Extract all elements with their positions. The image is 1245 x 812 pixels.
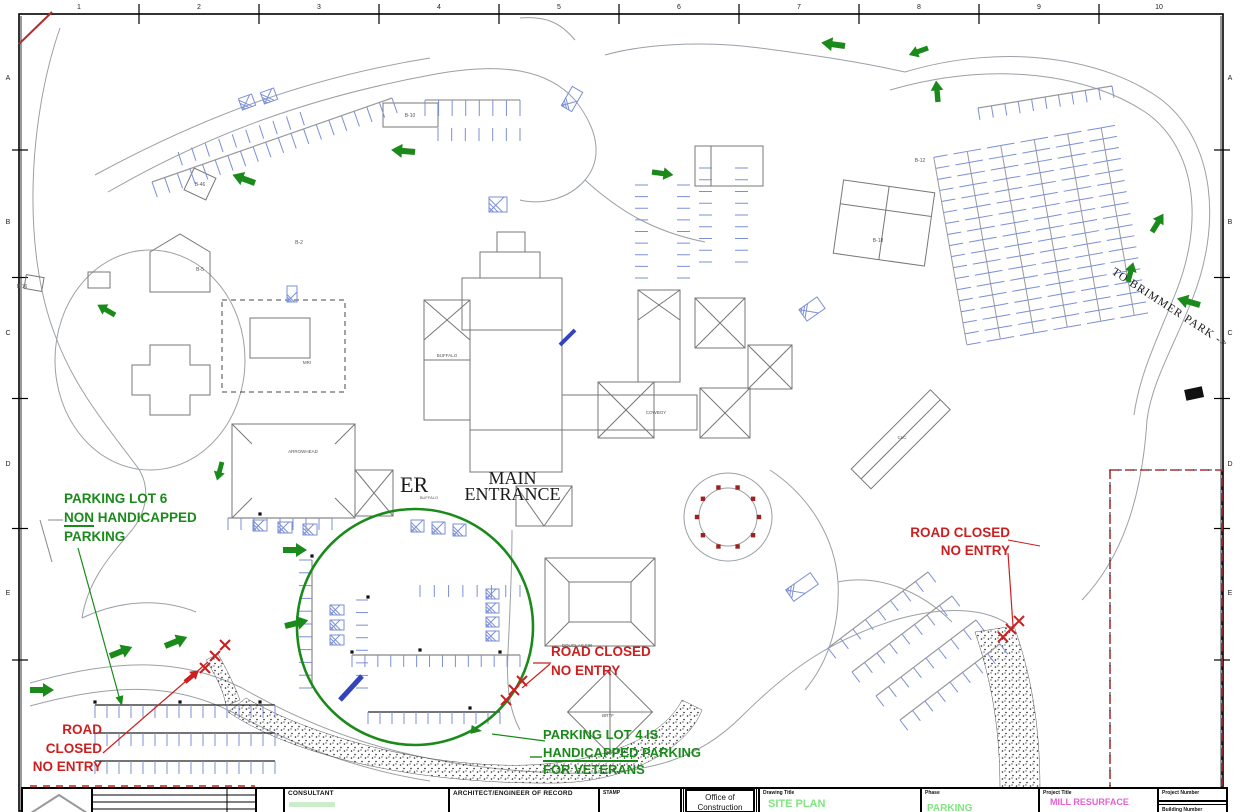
- svg-text:B-18: B-18: [873, 238, 884, 244]
- svg-text:COWBOY: COWBOY: [646, 410, 667, 415]
- drawing-title-value: SITE PLAN: [768, 798, 825, 810]
- svg-text:B-2: B-2: [295, 240, 303, 246]
- svg-text:C: C: [1227, 330, 1232, 337]
- svg-text:CLC: CLC: [897, 435, 907, 440]
- annotation-road-closed-right: ROAD CLOSED NO ENTRY: [905, 524, 1010, 560]
- svg-text:C: C: [5, 330, 10, 337]
- svg-text:B-16: B-16: [17, 284, 28, 290]
- svg-text:5: 5: [557, 4, 561, 11]
- svg-text:B-5: B-5: [196, 267, 204, 273]
- svg-text:B: B: [6, 219, 11, 226]
- svg-text:D: D: [1227, 461, 1232, 468]
- consultant-name-faint: [289, 802, 335, 807]
- titleblock-phase: Phase PARKING WAYFINDING: [922, 789, 1040, 812]
- svg-text:7: 7: [797, 4, 801, 11]
- svg-text:B-46: B-46: [195, 182, 206, 188]
- svg-text:BRTF: BRTF: [602, 713, 614, 718]
- svg-text:E: E: [1228, 590, 1233, 597]
- svg-text:BUFFALO: BUFFALO: [437, 353, 458, 358]
- svg-text:B-10: B-10: [405, 113, 416, 119]
- lot6-line2: NON HANDICAPPED: [64, 508, 197, 527]
- svg-text:MRI: MRI: [303, 360, 311, 365]
- titleblock-office: Office of Construction: [682, 789, 758, 812]
- annotation-road-closed-bottom-left: ROAD CLOSED NO ENTRY: [22, 721, 102, 777]
- titleblock-revision-table: [93, 789, 257, 812]
- svg-text:9: 9: [1037, 4, 1041, 11]
- svg-text:2: 2: [197, 4, 201, 11]
- label-main-entrance: MAIN ENTRANCE: [455, 470, 570, 502]
- svg-text:3: 3: [317, 4, 321, 11]
- svg-text:A: A: [6, 75, 11, 82]
- svg-text:E: E: [6, 590, 11, 597]
- site-plan-canvas: 12345678910AABBCCDDEEBUFFALOBUFFALOARROW…: [0, 0, 1245, 812]
- svg-text:8: 8: [917, 4, 921, 11]
- title-block: CONSULTANT ARCHITECT/ENGINEER OF RECORD …: [21, 787, 1228, 812]
- svg-text:4: 4: [437, 4, 441, 11]
- svg-text:10: 10: [1155, 4, 1163, 11]
- svg-text:ARROWHEAD: ARROWHEAD: [288, 449, 319, 454]
- titleblock-consultant: CONSULTANT: [285, 789, 450, 812]
- drawing-sheet: 12345678910AABBCCDDEEBUFFALOBUFFALOARROW…: [0, 0, 1245, 812]
- annotation-parking-lot-6: PARKING LOT 6 NON HANDICAPPED PARKING: [64, 489, 197, 546]
- svg-text:B: B: [1228, 219, 1233, 226]
- titleblock-spacer: [257, 789, 285, 812]
- annotation-road-closed-center: ROAD CLOSED NO ENTRY: [551, 643, 651, 680]
- svg-text:6: 6: [677, 4, 681, 11]
- titleblock-project-title: Project Title MILL RESURFACE: [1040, 789, 1159, 812]
- titleblock-stamp: STAMP: [600, 789, 682, 812]
- titleblock-drawing-title: Drawing Title SITE PLAN: [758, 789, 922, 812]
- titleblock-numbers: Project Number Building Number: [1159, 789, 1228, 812]
- svg-text:1: 1: [77, 4, 81, 11]
- svg-text:B-12: B-12: [915, 158, 926, 164]
- svg-text:A: A: [1228, 75, 1233, 82]
- titleblock-logo-cell: [21, 789, 93, 812]
- project-title-value: MILL RESURFACE: [1050, 797, 1129, 807]
- label-er: ER: [400, 472, 428, 498]
- titleblock-architect: ARCHITECT/ENGINEER OF RECORD: [450, 789, 600, 812]
- annotation-parking-lot-4: PARKING LOT 4 IS HANDICAPPED PARKING FOR…: [543, 726, 701, 779]
- lot6-line3: PARKING: [64, 527, 197, 546]
- lot6-line1: PARKING LOT 6: [64, 489, 197, 508]
- phase-value: PARKING WAYFINDING: [927, 803, 1038, 812]
- svg-text:D: D: [5, 461, 10, 468]
